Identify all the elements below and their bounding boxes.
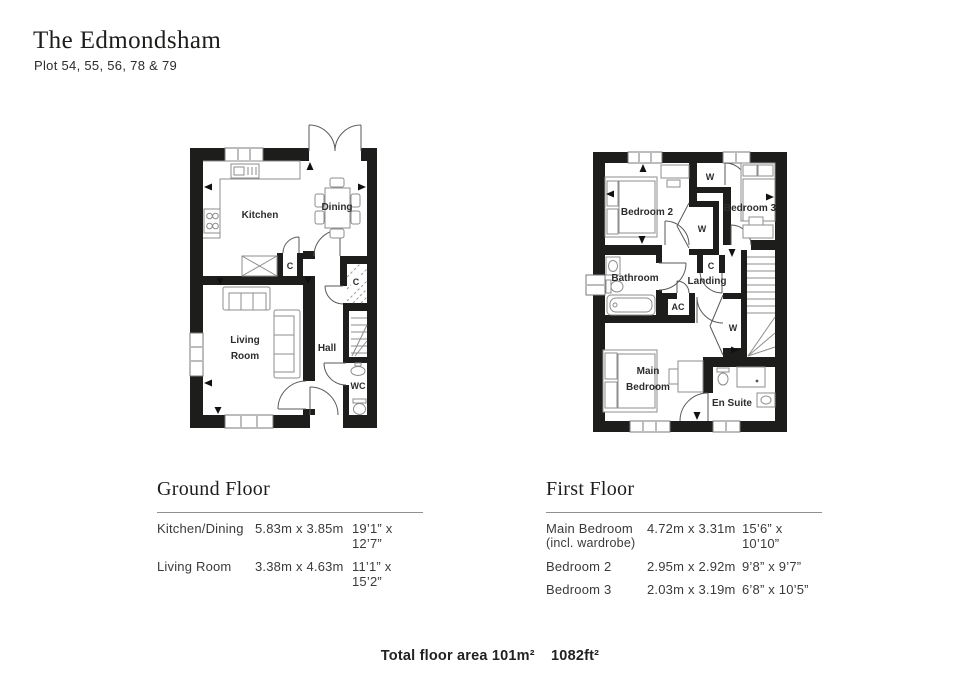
first-floor-plan: Bedroom 2 Bedroom 3 W W C Bathroom Landi… [585,145,795,440]
label-wc: WC [351,381,366,391]
floorplan-sheet: The Edmondsham Plot 54, 55, 56, 78 & 79 [0,0,980,694]
label-kitchen: Kitchen [242,210,279,221]
label-main-1: Main [637,366,660,377]
room-imperial: 11’1” x 15’2” [352,559,423,589]
total-area-metric: Total floor area 101m² [381,648,535,664]
label-cupboard-b: C [351,276,361,287]
room-name-note: (incl. wardrobe) [546,536,647,551]
label-landing: Landing [688,276,727,287]
table-row: Living Room 3.38m x 4.63m 11’1” x 15’2” [157,559,423,589]
room-metric: 2.95m x 2.92m [647,559,742,574]
label-cupboard: C [708,261,715,271]
room-name: Bedroom 3 [546,582,647,597]
label-bedroom3: Bedroom 3 [724,203,777,214]
table-row: Bedroom 3 2.03m x 3.19m 6’8” x 10’5” [546,582,822,597]
ensuite-toilet-icon [717,368,729,385]
plot-numbers: Plot 54, 55, 56, 78 & 79 [34,58,177,73]
first-floor-heading: First Floor [546,478,822,501]
label-hall: Hall [318,343,337,354]
label-ac: AC [672,302,685,312]
label-dining: Dining [321,202,352,213]
ground-floor-section: Ground Floor Kitchen/Dining 5.83m x 3.85… [157,478,423,589]
ensuite-sink-icon [757,393,775,407]
label-cupboard-a: C [287,261,294,271]
ground-floor-plan: Kitchen Dining C C Living Room Hall WC [185,113,400,433]
sofa [223,287,270,310]
hob-icon [204,209,220,233]
label-living-1: Living [230,335,259,346]
main-desk [669,361,703,392]
label-ensuite: En Suite [712,398,752,409]
total-floor-area: Total floor area 101m² 1082ft² [0,648,980,664]
room-imperial: 9’8” x 9’7” [742,559,822,574]
label-wardrobe-main: W [729,323,738,333]
sofa-2 [274,310,300,378]
divider [546,512,822,513]
label-bedroom2: Bedroom 2 [621,207,674,218]
room-metric: 4.72m x 3.31m [647,521,742,551]
room-name: Living Room [157,559,255,589]
label-living-2: Room [231,351,259,362]
room-imperial: 19’1” x 12’7” [352,521,423,551]
first-floor-section: First Floor Main Bedroom (incl. wardrobe… [546,478,822,597]
room-metric: 3.38m x 4.63m [255,559,352,589]
room-imperial: 15’6” x 10’10” [742,521,822,551]
room-metric: 2.03m x 3.19m [647,582,742,597]
table-row: Main Bedroom (incl. wardrobe) 4.72m x 3.… [546,521,822,551]
wc-sink-icon [351,363,365,376]
room-metric: 5.83m x 3.85m [255,521,352,551]
svg-text:C: C [353,277,360,287]
main-bed [603,350,657,412]
desk-2 [661,165,689,187]
label-bathroom: Bathroom [611,273,658,284]
bath-icon [607,295,655,315]
shower-icon [737,367,765,387]
wc-toilet-icon [353,399,366,415]
room-imperial: 6’8” x 10’5” [742,582,822,597]
total-area-imperial: 1082ft² [551,648,599,664]
page-title: The Edmondsham [33,27,221,55]
room-name: Main Bedroom (incl. wardrobe) [546,521,647,551]
divider [157,512,423,513]
room-name: Kitchen/Dining [157,521,255,551]
table-row: Kitchen/Dining 5.83m x 3.85m 19’1” x 12’… [157,521,423,551]
utility-box [242,256,277,276]
ground-floor-heading: Ground Floor [157,478,423,501]
label-wardrobe-mid: W [698,224,707,234]
ground-stairs [351,318,367,356]
label-wardrobe-top: W [706,172,715,182]
first-stairs [747,257,775,356]
table-row: Bedroom 2 2.95m x 2.92m 9’8” x 9’7” [546,559,822,574]
label-main-2: Bedroom [626,382,670,393]
room-name: Bedroom 2 [546,559,647,574]
